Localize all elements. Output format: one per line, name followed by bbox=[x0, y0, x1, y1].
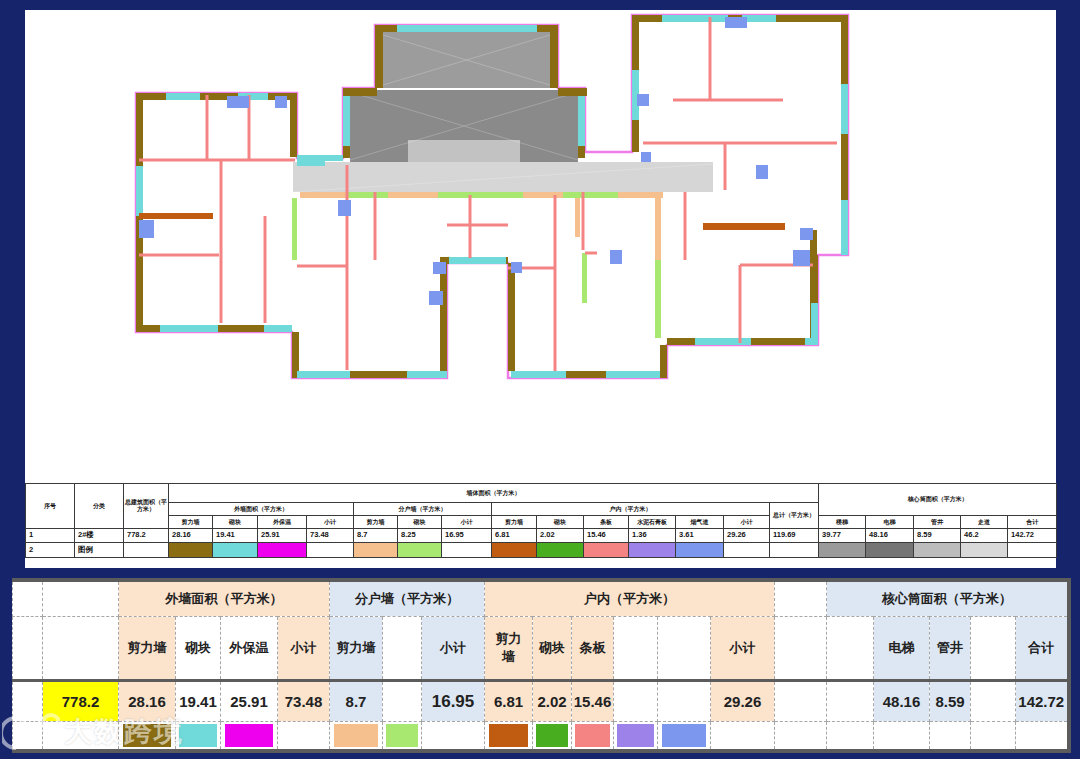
dt-core-group-header: 核心筒面积（平方米） bbox=[827, 580, 1069, 617]
st-h-ext-subtotal: 小计 bbox=[307, 516, 354, 529]
st-indoor-panel-value: 15.46 bbox=[584, 529, 629, 543]
dt-swatch-ext-shear bbox=[119, 722, 176, 752]
st-h-ext-insulation: 外保温 bbox=[258, 516, 307, 529]
dt-swatch-indoor-gypsum bbox=[614, 722, 658, 752]
dt-swatch-indoor-subtotal bbox=[711, 722, 775, 752]
st-h-indoor-gypsum: 水泥石膏板 bbox=[629, 516, 676, 529]
dt-swatch-ext-block bbox=[176, 722, 221, 752]
party-block-swatch bbox=[386, 724, 418, 747]
dt-swatch-party-block bbox=[383, 722, 422, 752]
dt-indoor-block-value: 2.02 bbox=[533, 681, 572, 722]
st-total-area-value: 778.2 bbox=[124, 529, 169, 543]
st-h-indoor-shear: 剪力墙 bbox=[492, 516, 537, 529]
st-h-grand-total: 总计（平方米） bbox=[770, 503, 819, 529]
st-h-indoor-group: 户内（平方米） bbox=[492, 503, 770, 516]
dt-legend-core-2 bbox=[874, 722, 930, 752]
st-legend-label: 图例 bbox=[75, 543, 124, 558]
st-indoor-block-value: 2.02 bbox=[537, 529, 584, 543]
dt-indoor-subtotal-value: 29.26 bbox=[711, 681, 775, 722]
st-building-name: 2#楼 bbox=[75, 529, 124, 543]
dt-party-subtotal-value: 16.95 bbox=[422, 681, 485, 722]
st-h-ext-group: 外墙面积（平方米） bbox=[169, 503, 354, 516]
st-core-stair-value: 39.77 bbox=[819, 529, 866, 543]
st-swatch-core-shaft bbox=[914, 543, 961, 558]
dt-core-empty1-value bbox=[827, 681, 874, 722]
dt-legend-core-1 bbox=[827, 722, 874, 752]
dt-h-party-shear: 剪力墙 bbox=[330, 617, 383, 681]
dt-sub-spacer-a bbox=[13, 617, 43, 681]
st-indoor-flue-value: 3.61 bbox=[676, 529, 724, 543]
dt-h-core-total: 合计 bbox=[1016, 617, 1069, 681]
st-swatch-party-block bbox=[398, 543, 442, 558]
ext-block-swatch bbox=[179, 724, 216, 747]
st-ext-insulation-value: 25.91 bbox=[258, 529, 307, 543]
st-swatch-core-corridor bbox=[961, 543, 1008, 558]
st-core-shaft-value: 8.59 bbox=[914, 529, 961, 543]
dt-spacer-a bbox=[13, 580, 43, 617]
dt-core-elevator-value: 48.16 bbox=[874, 681, 930, 722]
st-legend-blank bbox=[124, 543, 169, 558]
dt-h-ext-block: 砌块 bbox=[176, 617, 221, 681]
st-h-core-shaft: 管井 bbox=[914, 516, 961, 529]
st-h-wall-group: 墙体面积（平方米） bbox=[169, 484, 819, 503]
indoor-shear-swatch bbox=[489, 724, 529, 747]
st-h-indoor-subtotal: 小计 bbox=[724, 516, 770, 529]
dt-legend-spacer-b bbox=[43, 722, 119, 752]
st-h-category: 分类 bbox=[75, 484, 124, 529]
ext-insulation-swatch bbox=[225, 724, 273, 747]
st-swatch-indoor-block bbox=[537, 543, 584, 558]
st-grand-total-value: 119.69 bbox=[770, 529, 819, 543]
dt-h-indoor-shear: 剪力墙 bbox=[485, 617, 533, 681]
dt-indoor-empty2-value bbox=[658, 681, 711, 722]
dt-swatch-indoor-flue bbox=[658, 722, 711, 752]
st-party-block-value: 8.25 bbox=[398, 529, 442, 543]
dt-legend-core-4 bbox=[971, 722, 1016, 752]
dt-h-party-subtotal: 小计 bbox=[422, 617, 485, 681]
dt-h-ext-subtotal: 小计 bbox=[278, 617, 330, 681]
dt-ext-group-header: 外墙面积（平方米） bbox=[119, 580, 330, 617]
floorplan-panel: 序号 分类 总建筑面积（平方米） 墙体面积（平方米） 核心筒面积（平方米） 外墙… bbox=[25, 10, 1056, 568]
st-h-core-stair: 楼梯 bbox=[819, 516, 866, 529]
indoor-panel-swatch bbox=[575, 724, 610, 747]
dt-gap-col bbox=[775, 580, 827, 617]
dt-core-total-value: 142.72 bbox=[1016, 681, 1069, 722]
st-indoor-shear-value: 6.81 bbox=[492, 529, 537, 543]
st-core-total-value: 142.72 bbox=[1008, 529, 1057, 543]
st-h-indoor-block: 砌块 bbox=[537, 516, 584, 529]
st-ext-subtotal-value: 73.48 bbox=[307, 529, 354, 543]
indoor-gypsum-swatch bbox=[617, 724, 654, 747]
st-h-serial: 序号 bbox=[26, 484, 75, 529]
dt-h-ext-insulation: 外保温 bbox=[221, 617, 278, 681]
dt-legend-core-3 bbox=[930, 722, 971, 752]
st-swatch-ext-block bbox=[213, 543, 258, 558]
st-swatch-party-shear bbox=[354, 543, 398, 558]
dt-ext-shear-value: 28.16 bbox=[119, 681, 176, 722]
detail-table: 外墙面积（平方米） 分户墙（平方米） 户内（平方米） 核心筒面积（平方米） 剪力… bbox=[12, 578, 1071, 753]
st-party-shear-value: 8.7 bbox=[354, 529, 398, 543]
st-swatch-indoor-panel bbox=[584, 543, 629, 558]
st-h-core-group: 核心筒面积（平方米） bbox=[819, 484, 1057, 516]
st-ext-shear-value: 28.16 bbox=[169, 529, 213, 543]
dt-swatch-indoor-panel bbox=[572, 722, 614, 752]
dt-h-indoor-block: 砌块 bbox=[533, 617, 572, 681]
dt-sub-gap bbox=[775, 617, 827, 681]
st-h-indoor-panel: 条板 bbox=[584, 516, 629, 529]
ext-shear-swatch bbox=[123, 724, 171, 747]
st-swatch-indoor-shear bbox=[492, 543, 537, 558]
st-swatch-core-total bbox=[1008, 543, 1057, 558]
dt-h-ext-shear: 剪力墙 bbox=[119, 617, 176, 681]
dt-h-core-empty2 bbox=[971, 617, 1016, 681]
dt-spacer-b bbox=[43, 580, 119, 617]
st-h-ext-shear: 剪力墙 bbox=[169, 516, 213, 529]
slide-root: 序号 分类 总建筑面积（平方米） 墙体面积（平方米） 核心筒面积（平方米） 外墙… bbox=[0, 0, 1080, 759]
dt-ext-block-value: 19.41 bbox=[176, 681, 221, 722]
dt-sub-spacer-b bbox=[43, 617, 119, 681]
dt-party-empty-value bbox=[383, 681, 422, 722]
indoor-block-swatch bbox=[536, 724, 568, 747]
dt-h-core-empty1 bbox=[827, 617, 874, 681]
dt-core-empty2-value bbox=[971, 681, 1016, 722]
st-swatch-grand-total bbox=[770, 543, 819, 558]
st-h-indoor-flue: 烟气道 bbox=[676, 516, 724, 529]
dt-val-gap bbox=[775, 681, 827, 722]
st-swatch-core-elevator bbox=[866, 543, 914, 558]
st-h-party-shear: 剪力墙 bbox=[354, 516, 398, 529]
dt-h-party-empty bbox=[383, 617, 422, 681]
dt-swatch-party-shear bbox=[330, 722, 383, 752]
dt-indoor-panel-value: 15.46 bbox=[572, 681, 614, 722]
dt-legend-spacer-a bbox=[13, 722, 43, 752]
dt-legend-gap bbox=[775, 722, 827, 752]
indoor-flue-swatch bbox=[662, 724, 706, 747]
st-swatch-party-subtotal bbox=[442, 543, 492, 558]
dt-indoor-empty1-value bbox=[614, 681, 658, 722]
st-h-ext-block: 砌块 bbox=[213, 516, 258, 529]
st-serial-1: 1 bbox=[26, 529, 75, 543]
dt-val-spacer-a bbox=[13, 681, 43, 722]
dt-legend-core-5 bbox=[1016, 722, 1069, 752]
dt-indoor-shear-value: 6.81 bbox=[485, 681, 533, 722]
st-party-subtotal-value: 16.95 bbox=[442, 529, 492, 543]
summary-table: 序号 分类 总建筑面积（平方米） 墙体面积（平方米） 核心筒面积（平方米） 外墙… bbox=[25, 483, 1057, 558]
st-swatch-ext-insulation bbox=[258, 543, 307, 558]
st-indoor-gypsum-value: 1.36 bbox=[629, 529, 676, 543]
dt-core-shaft-value: 8.59 bbox=[930, 681, 971, 722]
dt-swatch-indoor-shear bbox=[485, 722, 533, 752]
st-indoor-subtotal-value: 29.26 bbox=[724, 529, 770, 543]
floor-plan-drawing bbox=[25, 10, 1056, 472]
dt-swatch-party-subtotal bbox=[422, 722, 485, 752]
st-h-total-area: 总建筑面积（平方米） bbox=[124, 484, 169, 529]
dt-h-indoor-empty1 bbox=[614, 617, 658, 681]
dt-swatch-ext-subtotal bbox=[278, 722, 330, 752]
party-shear-swatch bbox=[334, 724, 378, 747]
dt-total-area-value: 778.2 bbox=[43, 681, 119, 722]
dt-h-indoor-empty2 bbox=[658, 617, 711, 681]
dt-party-shear-value: 8.7 bbox=[330, 681, 383, 722]
st-swatch-indoor-flue bbox=[676, 543, 724, 558]
st-h-party-subtotal: 小计 bbox=[442, 516, 492, 529]
dt-ext-insulation-value: 25.91 bbox=[221, 681, 278, 722]
dt-ext-subtotal-value: 73.48 bbox=[278, 681, 330, 722]
st-swatch-core-stair bbox=[819, 543, 866, 558]
dt-party-group-header: 分户墙（平方米） bbox=[330, 580, 485, 617]
dt-swatch-indoor-block bbox=[533, 722, 572, 752]
st-h-core-corridor: 走道 bbox=[961, 516, 1008, 529]
st-core-corridor-value: 46.2 bbox=[961, 529, 1008, 543]
dt-h-core-elevator: 电梯 bbox=[874, 617, 930, 681]
st-h-party-group: 分户墙（平方米） bbox=[354, 503, 492, 516]
st-h-core-elevator: 电梯 bbox=[866, 516, 914, 529]
dt-h-indoor-subtotal: 小计 bbox=[711, 617, 775, 681]
dt-indoor-group-header: 户内（平方米） bbox=[485, 580, 775, 617]
st-h-core-total: 合计 bbox=[1008, 516, 1057, 529]
st-swatch-indoor-gypsum bbox=[629, 543, 676, 558]
st-swatch-ext-subtotal bbox=[307, 543, 354, 558]
st-ext-block-value: 19.41 bbox=[213, 529, 258, 543]
st-swatch-indoor-subtotal bbox=[724, 543, 770, 558]
dt-h-core-shaft: 管井 bbox=[930, 617, 971, 681]
st-swatch-ext-shear bbox=[169, 543, 213, 558]
st-serial-2: 2 bbox=[26, 543, 75, 558]
dt-h-indoor-panel: 条板 bbox=[572, 617, 614, 681]
dt-swatch-ext-insulation bbox=[221, 722, 278, 752]
st-core-elevator-value: 48.16 bbox=[866, 529, 914, 543]
st-h-party-block: 砌块 bbox=[398, 516, 442, 529]
